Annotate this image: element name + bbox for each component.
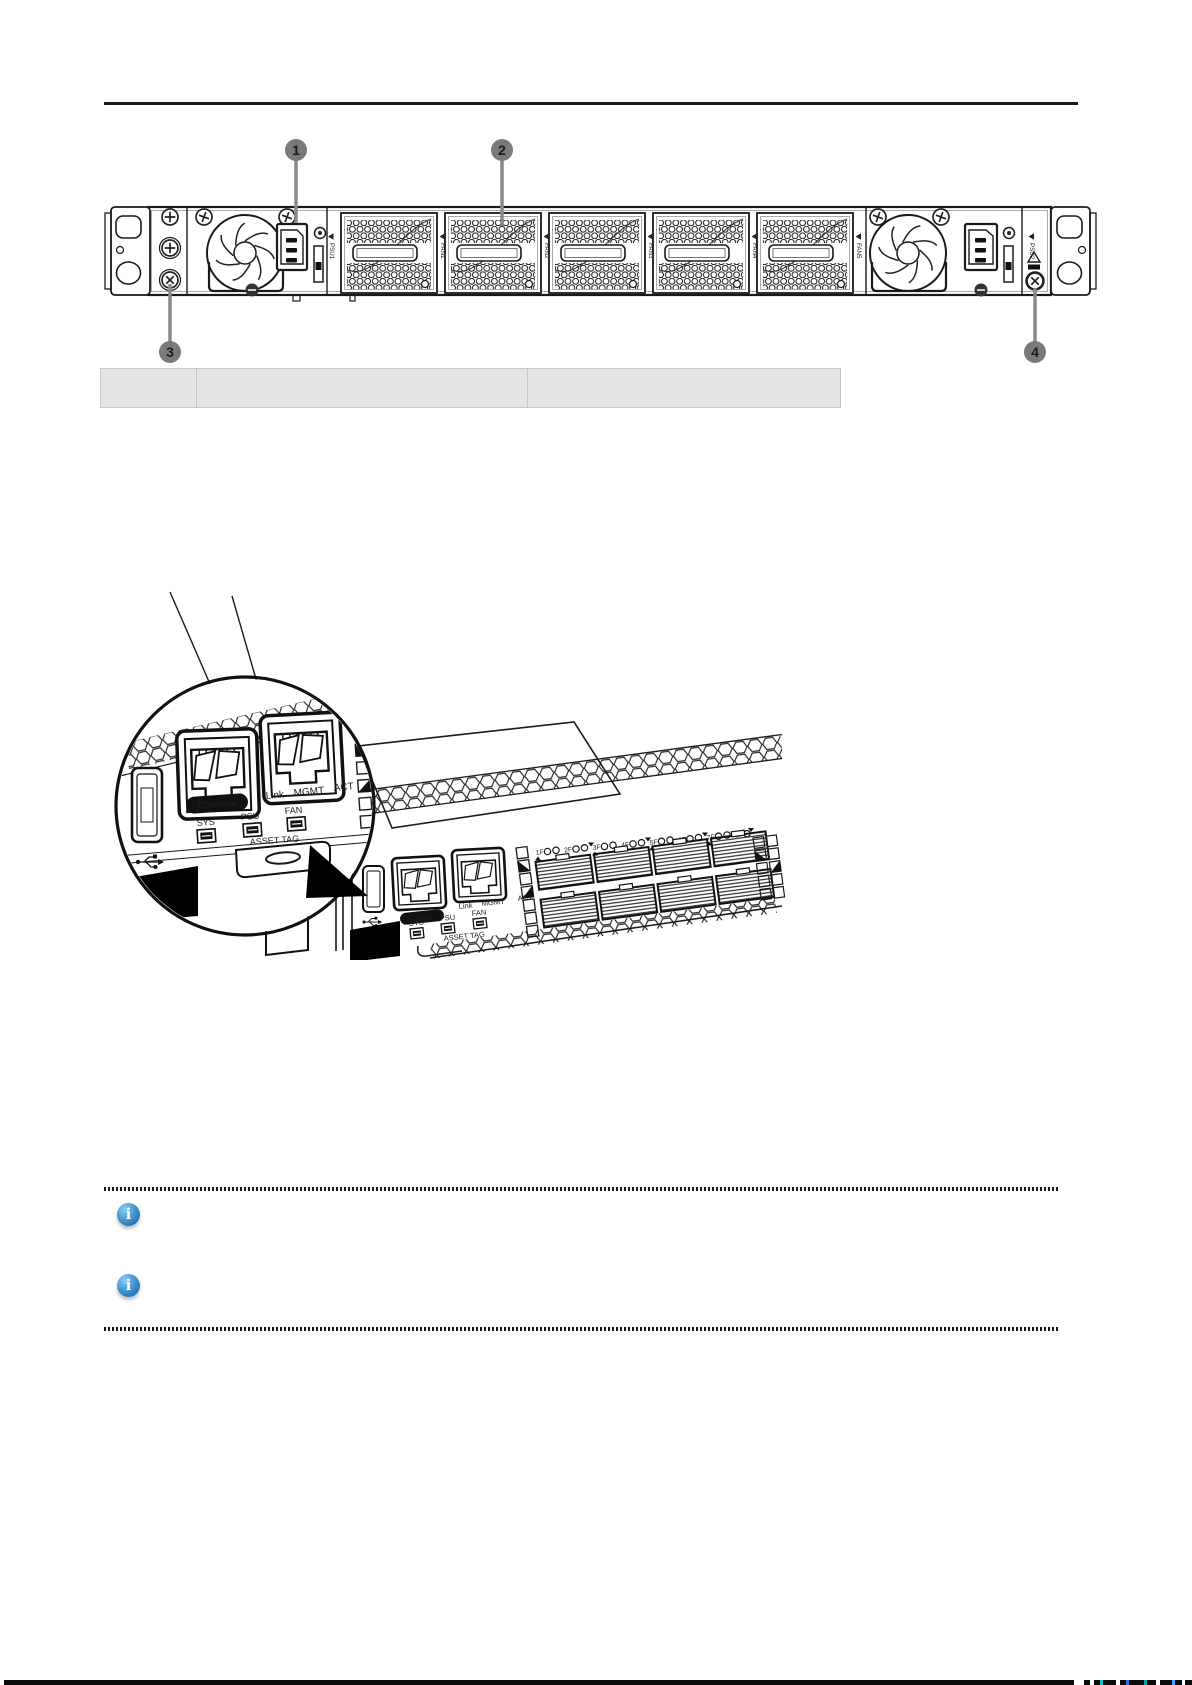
callout-4: 4 [1024,288,1046,363]
act-label-magnified: ACT [333,781,354,794]
info-icon-glyph: i [126,1207,132,1222]
console-port-device: Console [392,856,447,926]
fan5-label: FAN5 [855,243,862,259]
sys-led-magnified [197,829,216,843]
callout-1-number: 1 [292,142,300,158]
fan4-label: FAN4 [751,243,758,259]
psu-label-magnified: PSU [240,811,259,822]
panel-shadow-wedge [118,866,198,922]
port-closeup-figure: Console Link MGMT ACT SYS PSU FAN ASSET … [110,575,800,960]
right-rack-ear [1051,207,1096,295]
callout-4-number: 4 [1031,344,1039,360]
component-table [100,368,841,408]
fan-module-4 [653,213,749,293]
note-1: i [117,1202,150,1226]
console-port-magnified: Console [176,729,259,820]
top-rule-divider [104,102,1078,105]
fan2-label: FAN2 [543,243,550,259]
sys-led-device [410,928,424,939]
usb-port-device [362,866,384,927]
sys-label-magnified: SYS [196,817,215,828]
sys-label-device: SYS [408,917,424,928]
table-cell-description [197,369,528,407]
fan-led-device [473,918,487,929]
mgmt-port-magnified: Link MGMT ACT [260,712,354,804]
note-divider-top [104,1187,1060,1191]
info-icon-glyph: i [126,1278,132,1293]
fan-led-magnified [287,817,306,831]
info-icon: i [117,1274,140,1297]
note-2: i [117,1273,150,1297]
fan-label-device: FAN [471,908,486,918]
document-page: PSU1 FAN1 FAN2 FAN3 FAN4 FAN5 [0,0,1192,1685]
mgmt-label-device: MGMT [481,897,505,908]
rear-panel-figure: PSU1 FAN1 FAN2 FAN3 FAN4 FAN5 [100,128,1100,373]
port-label-1f: 1F [535,849,544,857]
fan1-label: FAN1 [439,243,446,259]
psu1-power-inlet [277,224,307,270]
psu2-power-inlet [965,224,997,270]
fan-module-2 [445,213,541,293]
port-label-3f: 3F [592,844,601,852]
psu-label-device: PSU [439,912,455,923]
mgmt-port-device: Link MGMT ACT [452,848,534,911]
callout-3-number: 3 [166,344,174,360]
callout-2-number: 2 [498,142,506,158]
fan3-label: FAN3 [647,243,654,259]
leader-lines [170,592,258,686]
info-icon: i [117,1203,140,1226]
table-cell-description-2 [528,369,840,407]
fan-module-1 [341,213,437,293]
fan-module-3 [549,213,645,293]
link-label-magnified: Link [265,789,285,802]
page-bottom-cutoff-band [4,1680,1192,1685]
left-rack-ear [105,207,150,295]
note-divider-bottom [104,1327,1060,1331]
table-cell-number [101,369,197,407]
fan-label-magnified: FAN [284,805,302,816]
psu-led-magnified [243,823,262,837]
psu1-label: PSU1 [328,243,335,260]
fan-module-5 [757,213,853,293]
